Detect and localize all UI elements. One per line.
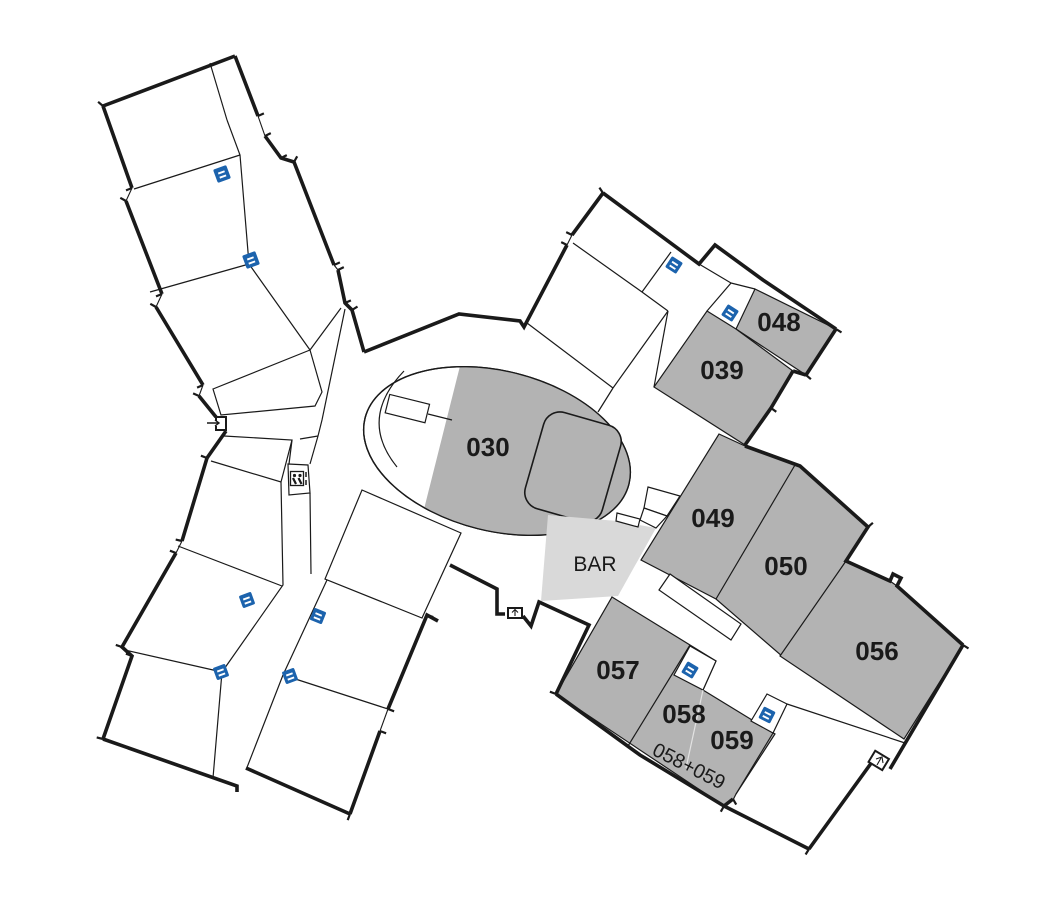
svg-text:030: 030 (466, 432, 509, 462)
svg-text:056: 056 (855, 636, 898, 666)
svg-text:BAR: BAR (573, 553, 616, 576)
svg-text:050: 050 (764, 551, 807, 581)
svg-text:059: 059 (710, 725, 753, 755)
svg-text:058: 058 (662, 699, 705, 729)
svg-text:049: 049 (691, 503, 734, 533)
svg-text:048: 048 (757, 307, 800, 337)
svg-text:039: 039 (700, 355, 743, 385)
svg-text:057: 057 (596, 655, 639, 685)
